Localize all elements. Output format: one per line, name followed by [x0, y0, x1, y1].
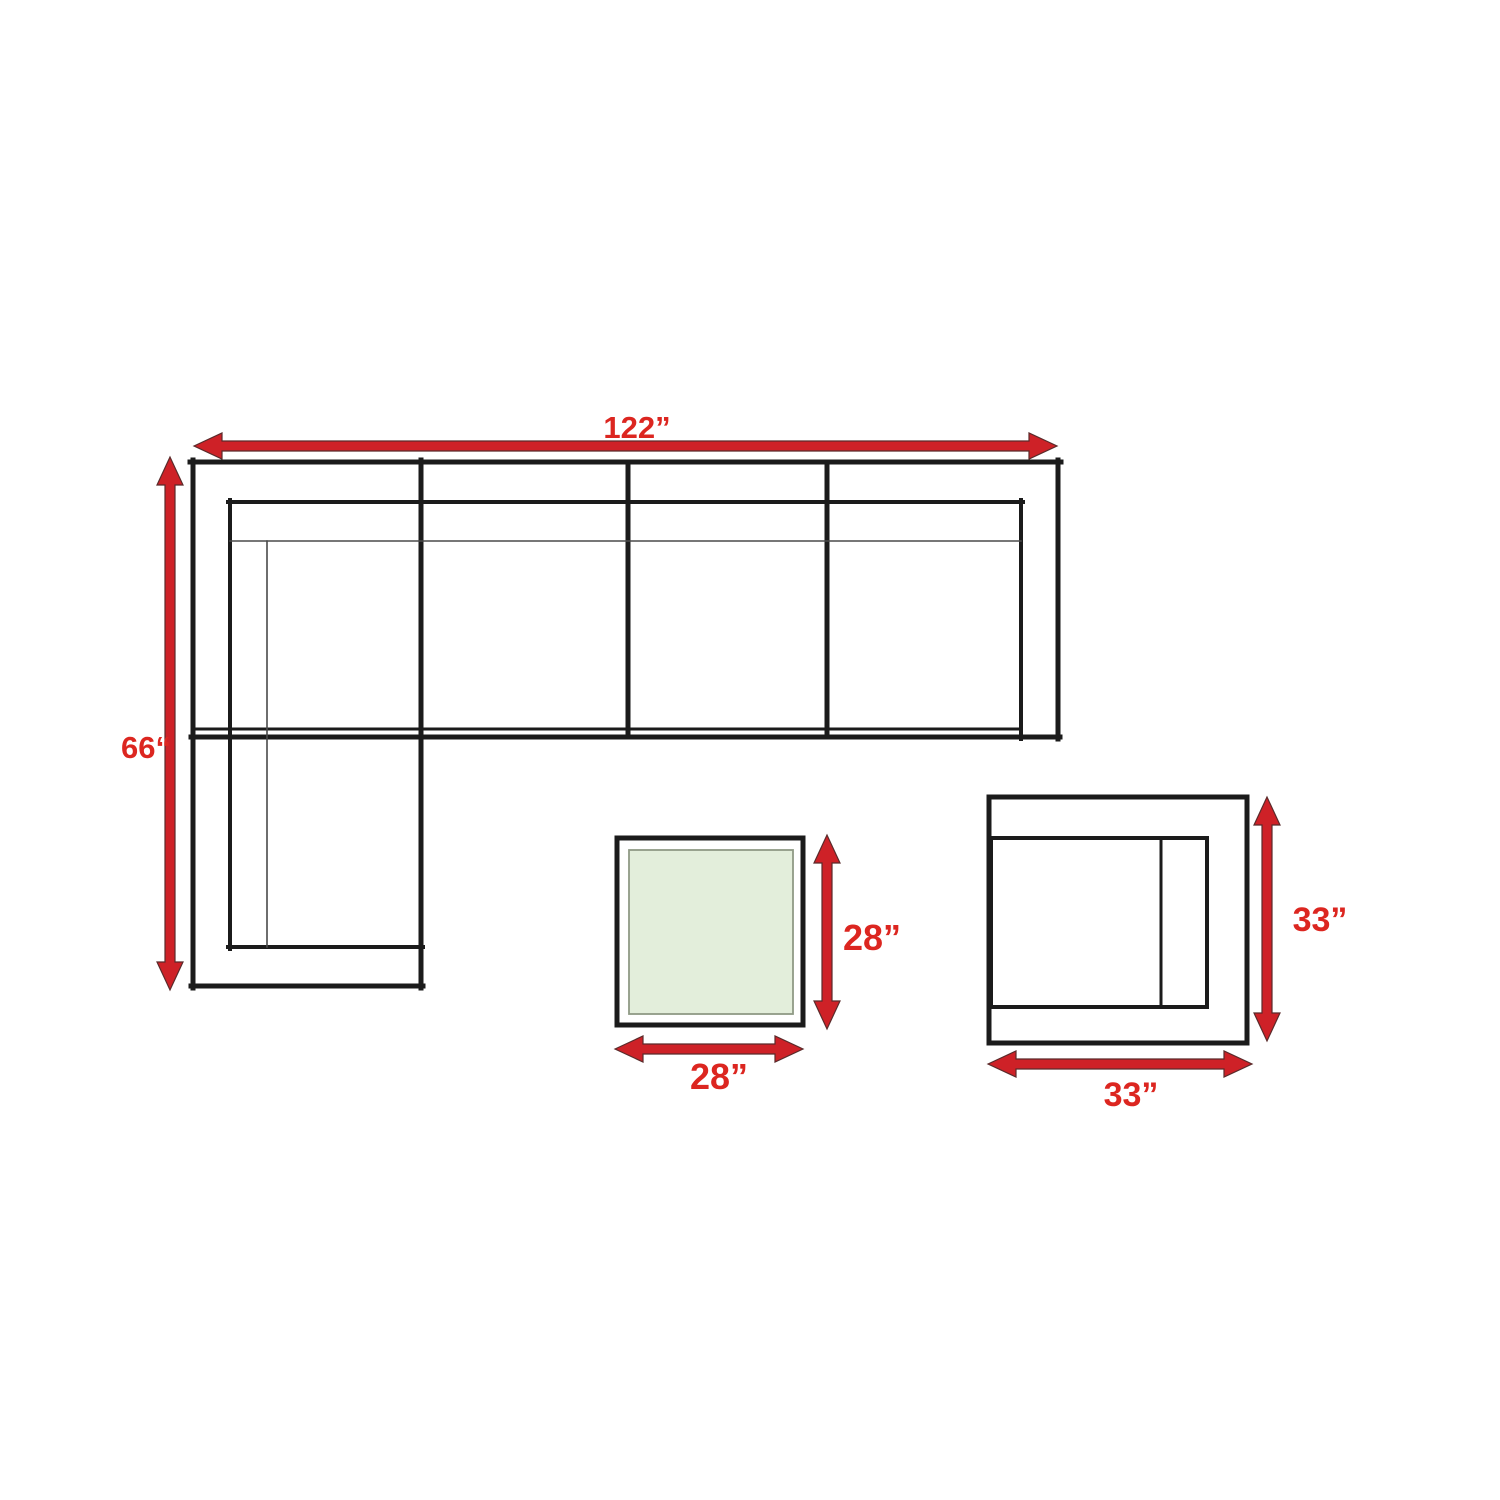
- coffee-table-plan: [617, 838, 803, 1025]
- coffee-table-width-dimension: 28”: [615, 1036, 803, 1097]
- sofa-depth-arrow: [157, 457, 183, 990]
- sofa-depth-dimension: 66“: [121, 457, 183, 990]
- furniture-dimension-diagram: 122” 66“ 28” 28”: [0, 0, 1500, 1500]
- coffee-table-depth-dimension: 28”: [814, 835, 901, 1029]
- chair-depth-dimension: 33”: [1254, 797, 1347, 1041]
- chair-depth-label: 33”: [1293, 901, 1348, 939]
- chair-width-dimension: 33”: [988, 1051, 1252, 1114]
- diagram-svg: 122” 66“ 28” 28”: [0, 0, 1500, 1500]
- sofa-width-dimension: 122”: [194, 410, 1057, 459]
- chair-depth-arrow: [1254, 797, 1280, 1041]
- coffee-table-depth-label: 28”: [843, 917, 901, 958]
- sofa-width-label: 122”: [603, 410, 670, 445]
- sofa-depth-label: 66“: [121, 730, 171, 765]
- chair-width-arrow: [988, 1051, 1252, 1077]
- chair-width-label: 33”: [1104, 1076, 1159, 1114]
- coffee-table-glass-top: [629, 850, 793, 1014]
- coffee-table-depth-arrow: [814, 835, 840, 1029]
- side-chair-plan: [989, 797, 1247, 1043]
- coffee-table-width-label: 28”: [690, 1056, 748, 1097]
